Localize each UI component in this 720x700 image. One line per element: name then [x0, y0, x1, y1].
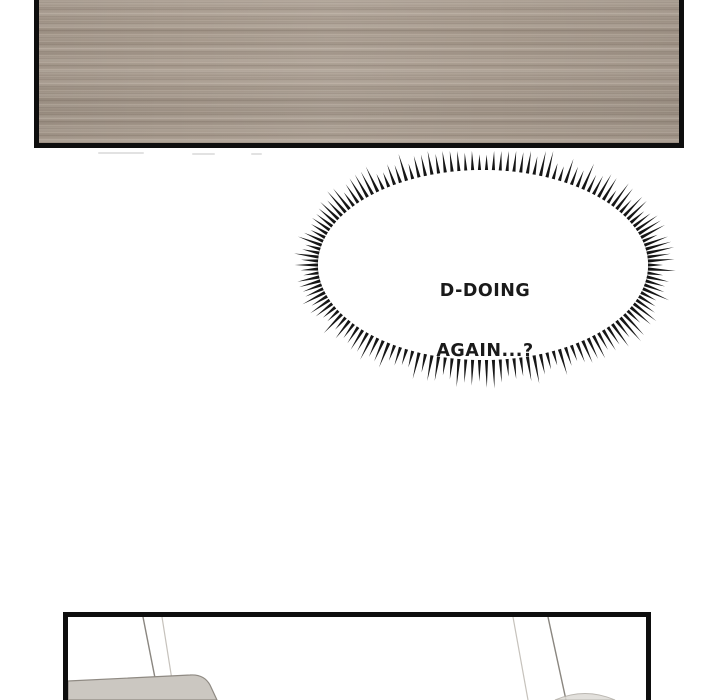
- stool-top-shape: [555, 694, 615, 700]
- speech-line-2: AGAIN...?: [368, 341, 602, 361]
- shout-bubble-burst: [0, 0, 720, 700]
- chair-leg-line: [143, 617, 156, 683]
- chair-leg-line: [513, 617, 528, 700]
- speech-bubble-text: D-DOING AGAIN...?: [368, 241, 602, 401]
- speech-line-1: D-DOING: [368, 281, 602, 301]
- sofa-arm-shape: [68, 675, 217, 700]
- panel-bottom-artwork: [68, 617, 646, 700]
- chair-leg-line: [162, 617, 172, 680]
- chair-leg-line: [548, 617, 566, 700]
- comic-panel-bottom: [63, 612, 651, 700]
- comic-page: D-DOING AGAIN...?: [0, 0, 720, 700]
